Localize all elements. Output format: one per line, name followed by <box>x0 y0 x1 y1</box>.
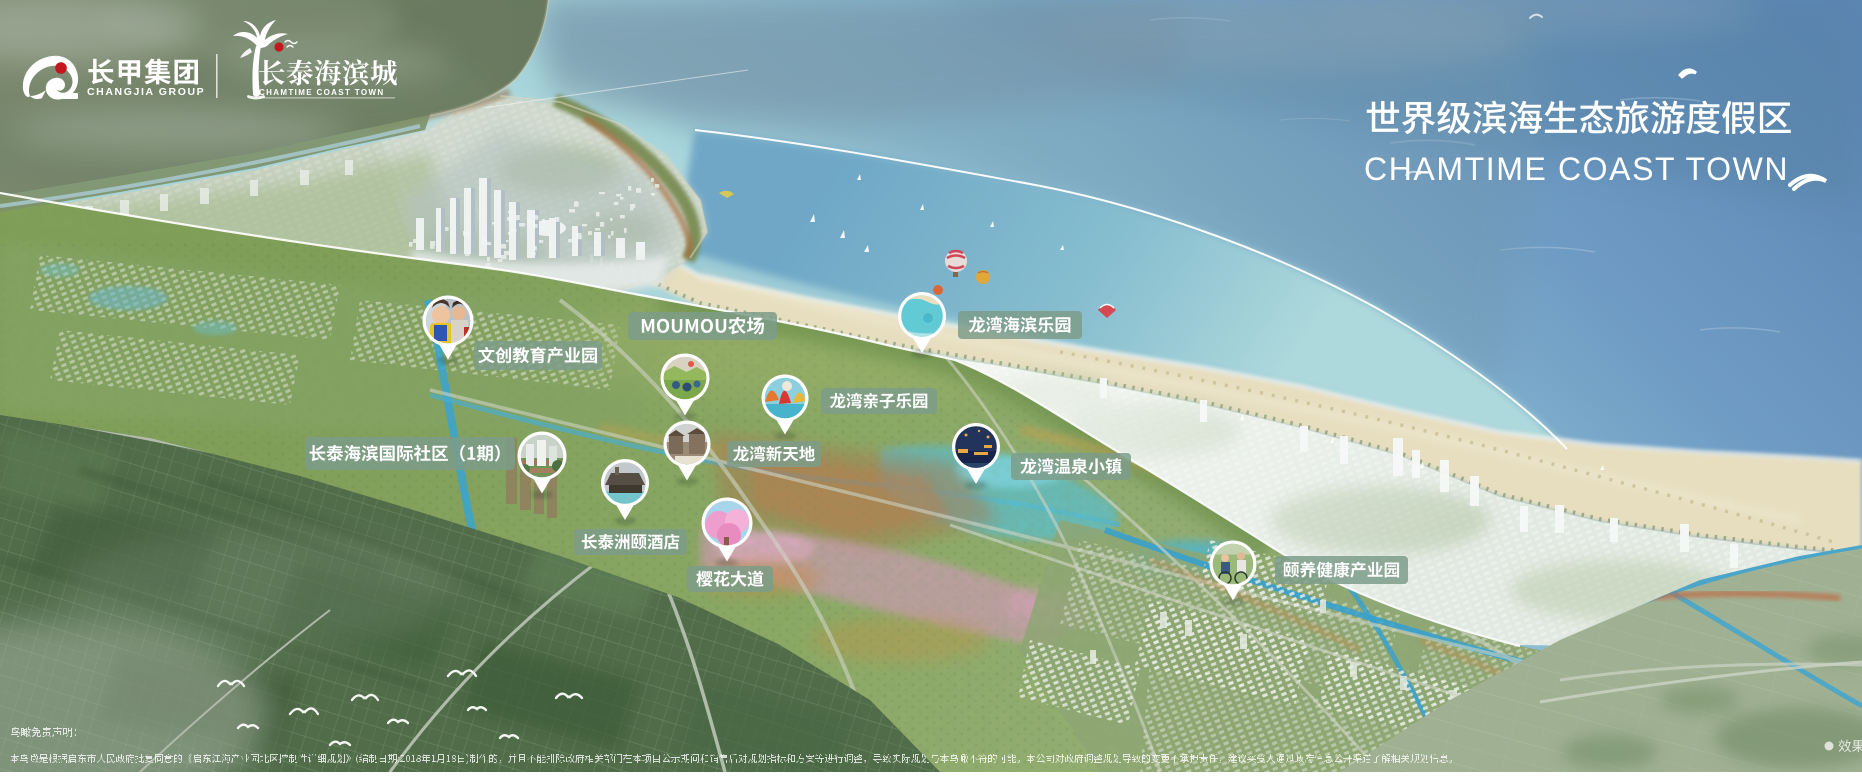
svg-text:CHANGJIA GROUP: CHANGJIA GROUP <box>87 86 205 98</box>
svg-text:CHAMTIME COAST TOWN: CHAMTIME COAST TOWN <box>259 88 385 97</box>
svg-text:CHAMTIME COAST TOWN: CHAMTIME COAST TOWN <box>1364 151 1789 187</box>
